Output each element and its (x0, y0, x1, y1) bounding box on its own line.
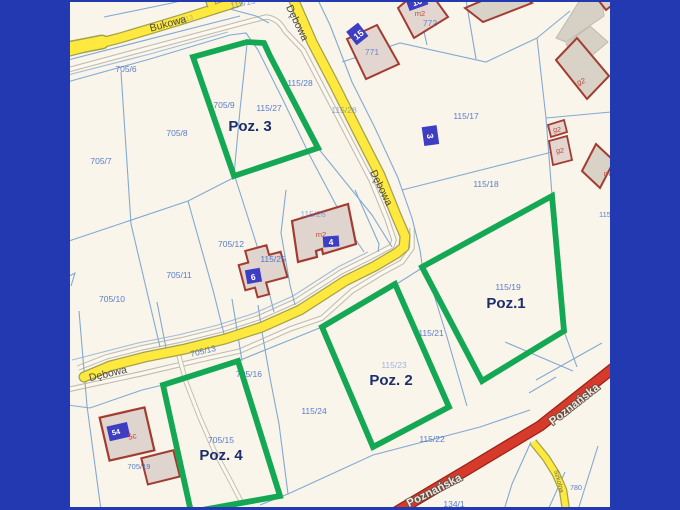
svg-text:780: 780 (570, 485, 582, 492)
svg-text:705/11: 705/11 (166, 270, 192, 280)
svg-text:Poz. 4: Poz. 4 (199, 447, 243, 464)
svg-text:m: m (604, 169, 610, 178)
svg-text:705/7: 705/7 (90, 156, 112, 166)
svg-text:705/15: 705/15 (208, 435, 234, 445)
svg-text:705/8: 705/8 (166, 128, 188, 138)
svg-text:115/24: 115/24 (301, 406, 327, 416)
svg-text:115/28: 115/28 (287, 78, 313, 88)
svg-text:115/27: 115/27 (256, 103, 282, 113)
svg-text:705/10: 705/10 (99, 294, 125, 304)
svg-text:115/17: 115/17 (453, 111, 479, 121)
svg-text:115/19: 115/19 (495, 282, 521, 292)
svg-text:115/25: 115/25 (260, 254, 286, 264)
svg-text:Poz. 2: Poz. 2 (369, 372, 412, 389)
svg-text:705/6: 705/6 (115, 64, 137, 74)
svg-text:115/23: 115/23 (381, 360, 407, 370)
svg-text:705/12: 705/12 (218, 239, 244, 249)
svg-text:705/9: 705/9 (213, 100, 235, 110)
svg-text:772: 772 (423, 18, 437, 28)
svg-text:115/21: 115/21 (418, 328, 444, 338)
svg-text:m2: m2 (415, 9, 425, 18)
svg-text:Poz. 3: Poz. 3 (228, 118, 271, 135)
svg-text:115/26: 115/26 (300, 209, 326, 219)
svg-text:705/19: 705/19 (128, 462, 151, 471)
svg-text:771: 771 (365, 47, 379, 57)
svg-text:115: 115 (599, 210, 611, 219)
svg-text:Poz.1: Poz.1 (486, 295, 525, 312)
svg-text:g2: g2 (553, 127, 561, 134)
svg-text:4: 4 (328, 237, 334, 247)
svg-text:115/22: 115/22 (419, 434, 445, 444)
svg-text:115/18: 115/18 (473, 179, 499, 189)
svg-text:g2: g2 (556, 148, 564, 155)
svg-text:115/28: 115/28 (331, 105, 357, 115)
